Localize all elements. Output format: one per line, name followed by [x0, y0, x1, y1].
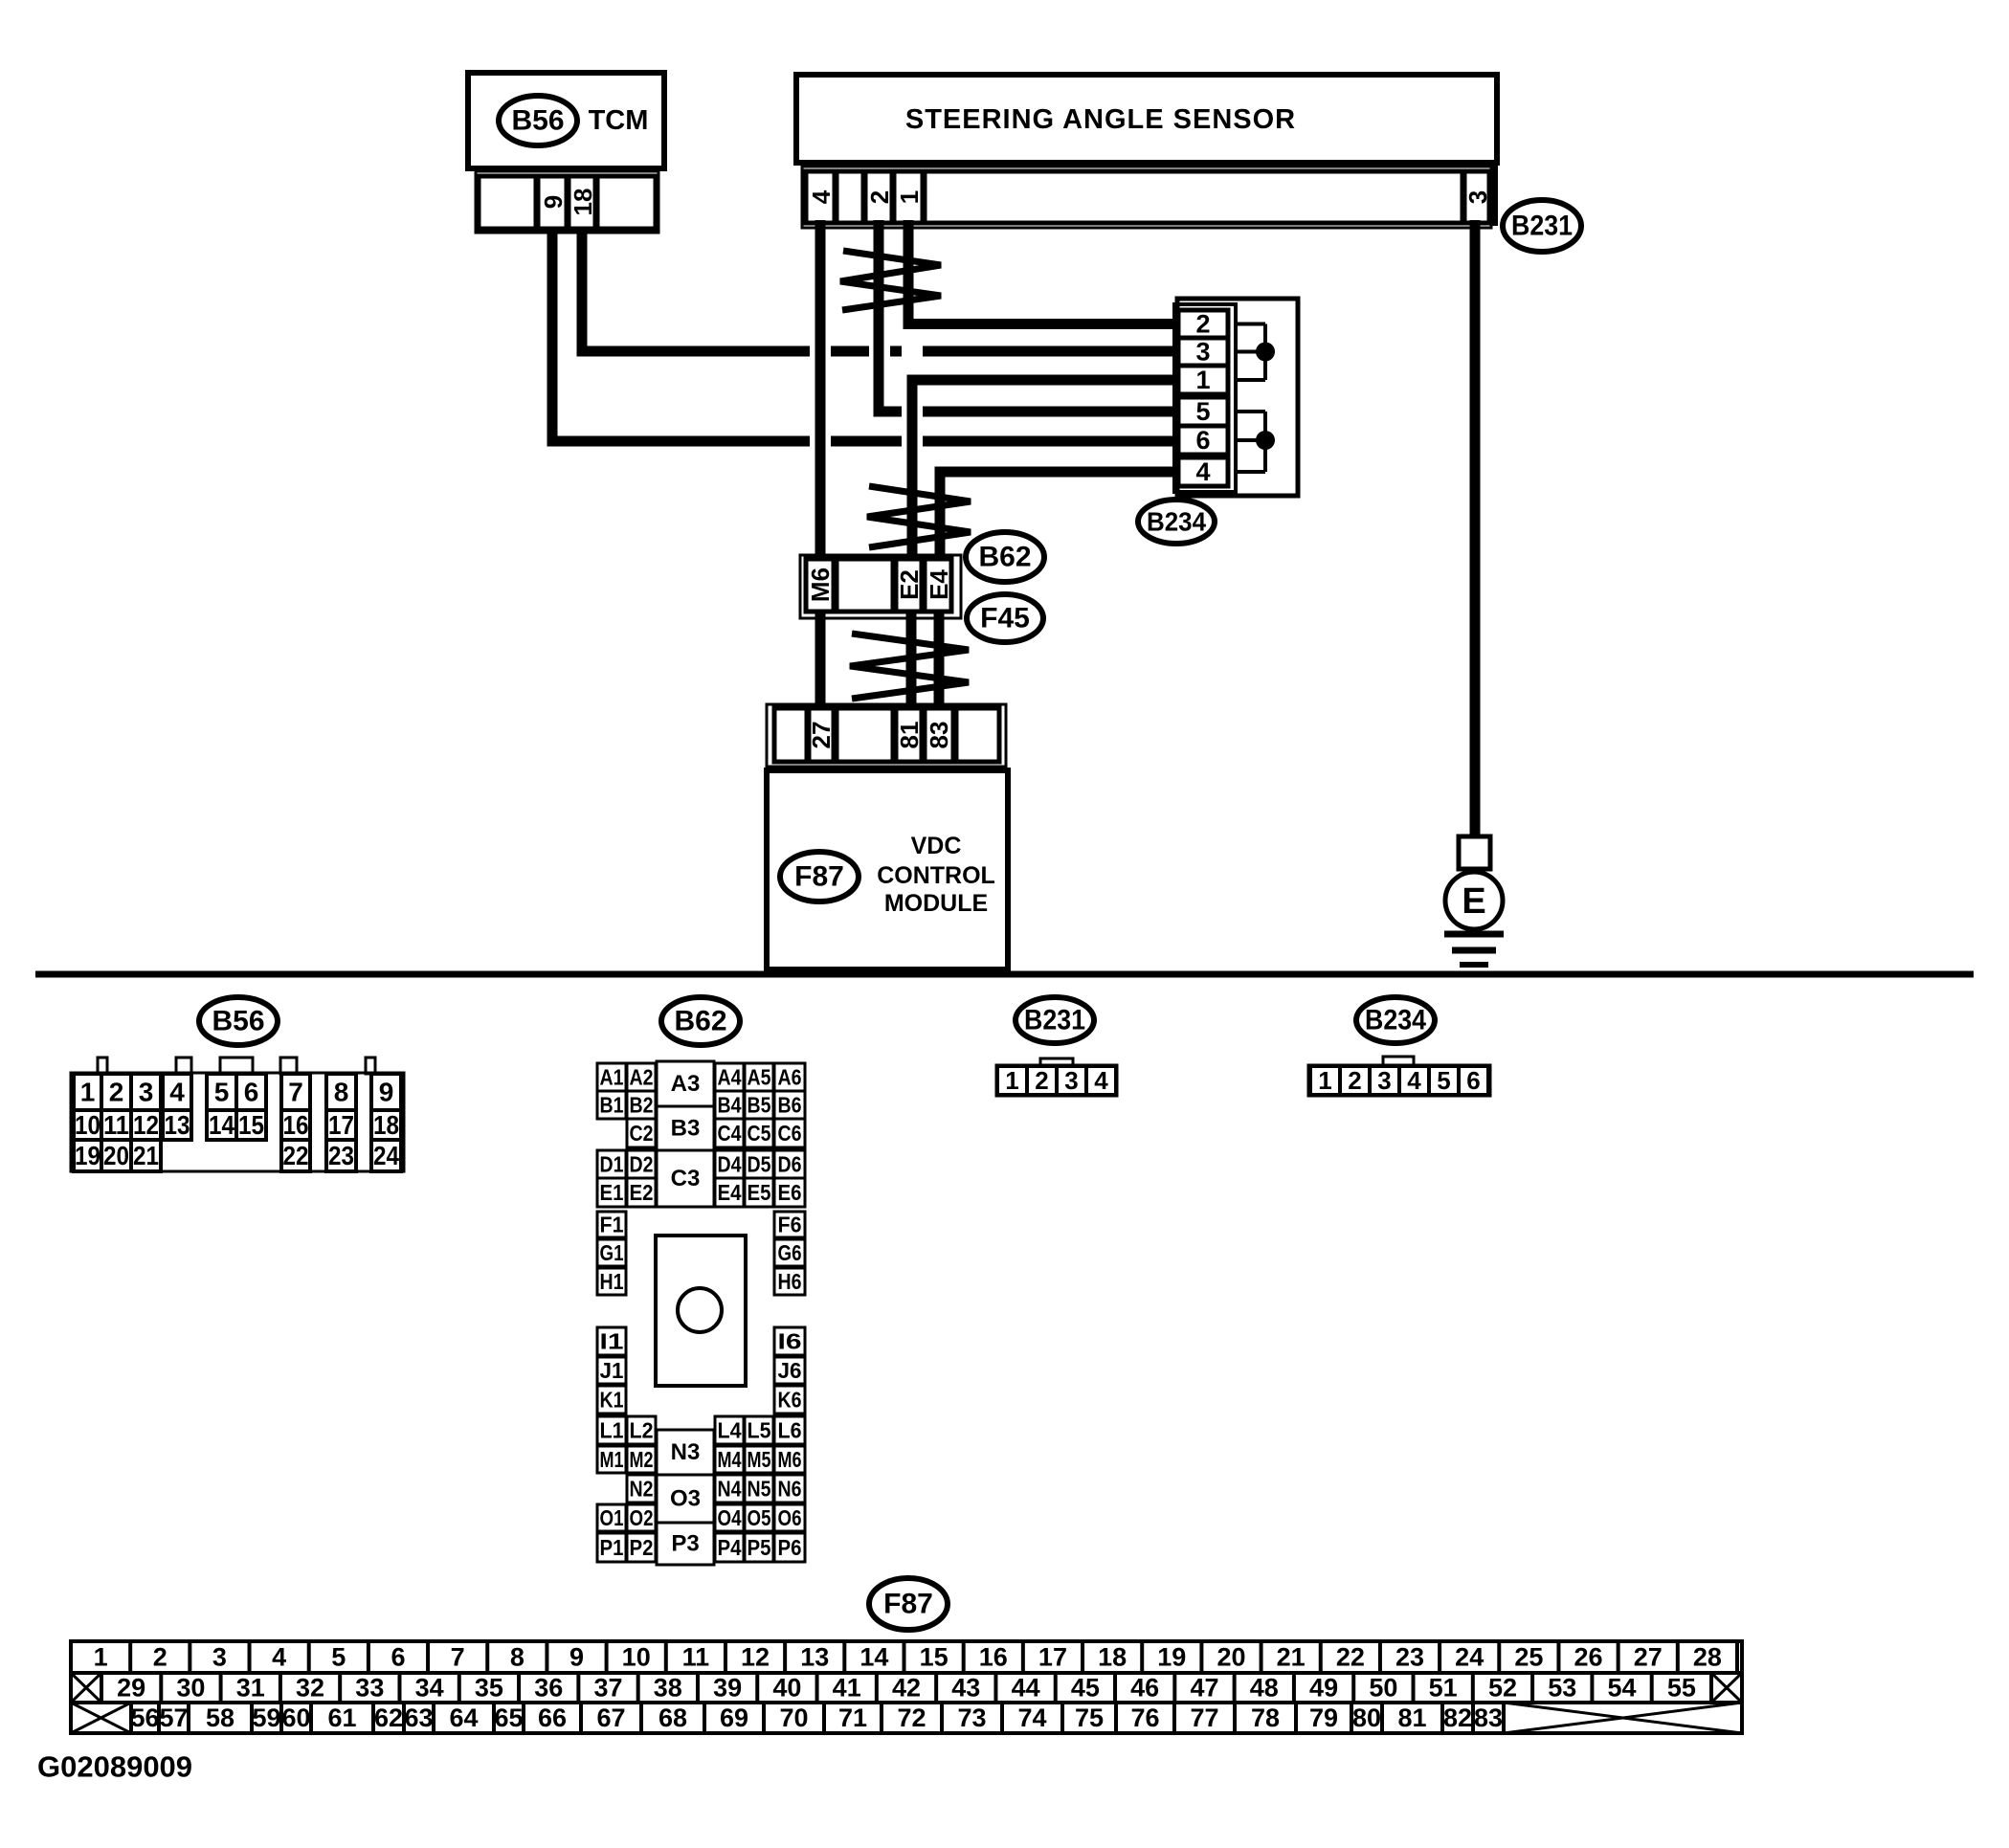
svg-text:C5: C5	[748, 1121, 771, 1146]
svg-text:33: 33	[355, 1674, 384, 1703]
svg-text:82: 82	[1443, 1703, 1472, 1732]
svg-text:M5: M5	[748, 1447, 771, 1472]
svg-text:71: 71	[838, 1703, 867, 1732]
svg-text:32: 32	[296, 1674, 324, 1703]
svg-text:A2: A2	[630, 1065, 654, 1090]
svg-text:F45: F45	[980, 603, 1030, 635]
svg-text:6: 6	[244, 1078, 259, 1107]
svg-text:23: 23	[328, 1141, 354, 1170]
svg-text:M6: M6	[778, 1447, 802, 1472]
svg-text:42: 42	[892, 1674, 921, 1703]
svg-text:75: 75	[1075, 1703, 1104, 1732]
svg-text:38: 38	[654, 1674, 682, 1703]
svg-text:J6: J6	[778, 1358, 802, 1383]
svg-text:22: 22	[283, 1141, 309, 1170]
svg-text:58: 58	[206, 1703, 234, 1732]
svg-text:B234: B234	[1147, 507, 1206, 537]
svg-text:B2: B2	[630, 1093, 654, 1118]
svg-text:7: 7	[288, 1078, 303, 1107]
svg-text:6: 6	[1195, 426, 1210, 455]
svg-text:10: 10	[75, 1110, 100, 1140]
svg-text:B1: B1	[600, 1093, 624, 1118]
svg-text:B3: B3	[671, 1116, 701, 1142]
svg-text:12: 12	[133, 1110, 159, 1140]
svg-text:56: 56	[130, 1703, 159, 1732]
svg-text:1: 1	[1318, 1066, 1331, 1095]
svg-text:74: 74	[1017, 1703, 1046, 1732]
svg-text:STEERING ANGLE SENSOR: STEERING ANGLE SENSOR	[905, 104, 1296, 135]
svg-text:A1: A1	[600, 1065, 624, 1090]
svg-text:19: 19	[1157, 1643, 1186, 1672]
svg-text:1: 1	[1195, 366, 1210, 394]
svg-text:4: 4	[1407, 1066, 1421, 1095]
svg-text:O5: O5	[748, 1505, 771, 1530]
svg-text:81: 81	[895, 722, 924, 749]
svg-text:25: 25	[1514, 1643, 1543, 1672]
svg-text:24: 24	[1455, 1643, 1484, 1672]
svg-text:A4: A4	[718, 1065, 742, 1090]
svg-text:15: 15	[238, 1110, 264, 1140]
svg-text:1: 1	[80, 1078, 96, 1107]
svg-text:O1: O1	[600, 1505, 624, 1530]
svg-text:37: 37	[593, 1674, 622, 1703]
svg-text:65: 65	[494, 1703, 523, 1732]
svg-text:O6: O6	[778, 1505, 802, 1530]
svg-text:5: 5	[1195, 397, 1210, 426]
svg-text:13: 13	[165, 1110, 190, 1140]
svg-text:1: 1	[1005, 1066, 1018, 1095]
svg-text:F87: F87	[883, 1589, 933, 1620]
svg-text:L4: L4	[718, 1418, 742, 1443]
svg-text:N2: N2	[630, 1477, 654, 1502]
svg-text:C3: C3	[671, 1166, 701, 1191]
svg-text:45: 45	[1071, 1674, 1100, 1703]
svg-text:27: 27	[1634, 1643, 1663, 1672]
svg-text:11: 11	[682, 1643, 710, 1672]
svg-text:K1: K1	[600, 1388, 624, 1413]
svg-text:44: 44	[1012, 1674, 1040, 1703]
svg-text:16: 16	[979, 1643, 1008, 1672]
svg-text:TCM: TCM	[589, 105, 649, 136]
svg-text:B62: B62	[674, 1006, 726, 1037]
svg-text:83: 83	[925, 722, 953, 749]
svg-text:F87: F87	[794, 861, 844, 893]
svg-text:2: 2	[153, 1643, 167, 1672]
svg-text:C2: C2	[630, 1121, 654, 1146]
svg-text:59: 59	[252, 1703, 280, 1732]
svg-text:14: 14	[859, 1643, 888, 1672]
svg-text:52: 52	[1488, 1674, 1517, 1703]
svg-text:19: 19	[75, 1141, 100, 1170]
svg-text:5: 5	[214, 1078, 230, 1107]
svg-text:80: 80	[1352, 1703, 1381, 1732]
svg-text:4: 4	[272, 1643, 286, 1672]
svg-text:P6: P6	[778, 1535, 802, 1560]
svg-text:O2: O2	[630, 1505, 654, 1530]
svg-text:6: 6	[391, 1643, 405, 1672]
svg-text:69: 69	[720, 1703, 748, 1732]
svg-text:2: 2	[865, 190, 894, 204]
svg-text:D6: D6	[778, 1152, 802, 1177]
svg-text:G6: G6	[778, 1240, 802, 1265]
svg-text:E: E	[1462, 881, 1485, 922]
svg-text:CONTROL: CONTROL	[877, 862, 995, 889]
svg-text:61: 61	[327, 1703, 356, 1732]
svg-text:I6: I6	[778, 1329, 802, 1354]
svg-text:31: 31	[236, 1674, 265, 1703]
svg-text:2: 2	[109, 1078, 124, 1107]
svg-text:M4: M4	[718, 1447, 742, 1472]
svg-text:P2: P2	[630, 1535, 654, 1560]
svg-text:36: 36	[534, 1674, 563, 1703]
svg-text:50: 50	[1369, 1674, 1397, 1703]
svg-text:L6: L6	[778, 1418, 802, 1443]
svg-text:P1: P1	[600, 1535, 624, 1560]
svg-text:29: 29	[117, 1674, 145, 1703]
svg-text:73: 73	[957, 1703, 986, 1732]
svg-text:B56: B56	[511, 105, 564, 137]
svg-text:26: 26	[1574, 1643, 1603, 1672]
svg-text:55: 55	[1667, 1674, 1696, 1703]
svg-text:E4: E4	[925, 569, 953, 600]
svg-text:2: 2	[1195, 310, 1210, 339]
svg-text:77: 77	[1190, 1703, 1218, 1732]
svg-text:A6: A6	[778, 1065, 802, 1090]
svg-text:76: 76	[1130, 1703, 1159, 1732]
svg-text:A5: A5	[748, 1065, 771, 1090]
svg-text:17: 17	[1038, 1643, 1067, 1672]
svg-text:8: 8	[334, 1078, 349, 1107]
svg-text:39: 39	[713, 1674, 742, 1703]
svg-text:47: 47	[1190, 1674, 1218, 1703]
svg-text:F6: F6	[778, 1213, 802, 1237]
svg-text:B231: B231	[1511, 211, 1573, 242]
svg-text:48: 48	[1250, 1674, 1279, 1703]
svg-text:1: 1	[94, 1643, 108, 1672]
svg-text:D2: D2	[630, 1152, 654, 1177]
svg-text:4: 4	[169, 1078, 185, 1107]
svg-text:B56: B56	[212, 1006, 264, 1037]
svg-text:18: 18	[569, 189, 597, 216]
svg-text:C6: C6	[778, 1121, 802, 1146]
svg-text:3: 3	[1064, 1066, 1078, 1095]
svg-text:68: 68	[659, 1703, 687, 1732]
svg-text:62: 62	[374, 1703, 403, 1732]
svg-text:35: 35	[475, 1674, 503, 1703]
svg-text:4: 4	[1195, 457, 1210, 486]
svg-text:15: 15	[920, 1643, 949, 1672]
svg-text:41: 41	[833, 1674, 861, 1703]
svg-text:46: 46	[1130, 1674, 1159, 1703]
svg-text:70: 70	[779, 1703, 808, 1732]
svg-text:F1: F1	[600, 1213, 624, 1237]
svg-text:43: 43	[951, 1674, 980, 1703]
svg-text:M2: M2	[630, 1447, 654, 1472]
svg-text:27: 27	[807, 722, 836, 749]
svg-text:1: 1	[895, 190, 924, 204]
svg-text:72: 72	[897, 1703, 926, 1732]
svg-text:66: 66	[538, 1703, 567, 1732]
svg-text:N6: N6	[778, 1477, 802, 1502]
svg-text:E1: E1	[600, 1180, 624, 1205]
svg-text:22: 22	[1336, 1643, 1365, 1672]
svg-text:O4: O4	[718, 1505, 742, 1530]
svg-text:L2: L2	[630, 1418, 654, 1443]
svg-text:16: 16	[283, 1110, 309, 1140]
svg-text:81: 81	[1397, 1703, 1426, 1732]
svg-text:63: 63	[404, 1703, 433, 1732]
svg-text:12: 12	[741, 1643, 770, 1672]
svg-text:H6: H6	[778, 1269, 802, 1294]
svg-text:24: 24	[373, 1141, 399, 1170]
svg-text:67: 67	[596, 1703, 625, 1732]
svg-text:B234: B234	[1365, 1005, 1426, 1036]
svg-text:I1: I1	[600, 1329, 624, 1354]
svg-text:G02089009: G02089009	[37, 1750, 192, 1784]
svg-text:5: 5	[331, 1643, 346, 1672]
svg-text:9: 9	[379, 1078, 394, 1107]
svg-text:O3: O3	[670, 1486, 701, 1512]
svg-text:30: 30	[176, 1674, 205, 1703]
svg-text:P3: P3	[671, 1531, 699, 1557]
svg-text:E5: E5	[748, 1180, 771, 1205]
svg-text:M6: M6	[806, 568, 835, 602]
svg-text:E4: E4	[718, 1180, 742, 1205]
svg-text:E2: E2	[630, 1180, 654, 1205]
svg-text:3: 3	[1463, 190, 1492, 204]
svg-text:3: 3	[139, 1078, 154, 1107]
svg-text:G1: G1	[600, 1240, 624, 1265]
svg-text:B4: B4	[718, 1093, 742, 1118]
svg-text:20: 20	[103, 1141, 129, 1170]
svg-text:18: 18	[1098, 1643, 1127, 1672]
svg-text:13: 13	[800, 1643, 829, 1672]
svg-text:10: 10	[622, 1643, 651, 1672]
svg-text:A3: A3	[671, 1071, 701, 1097]
svg-text:53: 53	[1548, 1674, 1576, 1703]
svg-text:D1: D1	[600, 1152, 624, 1177]
svg-text:49: 49	[1309, 1674, 1338, 1703]
svg-text:3: 3	[1195, 338, 1210, 367]
svg-text:P5: P5	[748, 1535, 771, 1560]
svg-text:M1: M1	[600, 1447, 624, 1472]
svg-text:60: 60	[281, 1703, 310, 1732]
svg-text:57: 57	[159, 1703, 188, 1732]
svg-text:4: 4	[807, 189, 836, 204]
svg-text:6: 6	[1466, 1066, 1480, 1095]
svg-text:11: 11	[103, 1110, 129, 1140]
svg-text:2: 2	[1348, 1066, 1361, 1095]
svg-text:L5: L5	[748, 1418, 771, 1443]
svg-text:3: 3	[1377, 1066, 1391, 1095]
svg-text:17: 17	[328, 1110, 354, 1140]
svg-text:C4: C4	[718, 1121, 742, 1146]
svg-text:B6: B6	[778, 1093, 802, 1118]
svg-text:3: 3	[212, 1643, 227, 1672]
svg-text:MODULE: MODULE	[884, 890, 988, 917]
svg-text:9: 9	[569, 1643, 584, 1672]
svg-text:28: 28	[1693, 1643, 1722, 1672]
svg-text:B62: B62	[978, 542, 1031, 573]
svg-text:B231: B231	[1024, 1005, 1085, 1036]
svg-text:P4: P4	[718, 1535, 742, 1560]
svg-text:VDC: VDC	[911, 833, 962, 859]
svg-text:N5: N5	[748, 1477, 771, 1502]
svg-text:8: 8	[510, 1643, 525, 1672]
svg-text:21: 21	[1277, 1643, 1306, 1672]
svg-text:34: 34	[415, 1674, 444, 1703]
svg-text:H1: H1	[600, 1269, 624, 1294]
svg-text:2: 2	[1035, 1066, 1048, 1095]
svg-text:40: 40	[772, 1674, 801, 1703]
svg-text:N3: N3	[671, 1439, 701, 1465]
svg-text:7: 7	[451, 1643, 465, 1672]
svg-text:5: 5	[1437, 1066, 1450, 1095]
svg-text:79: 79	[1309, 1703, 1338, 1732]
svg-text:N4: N4	[718, 1477, 742, 1502]
svg-text:L1: L1	[600, 1418, 624, 1443]
svg-text:14: 14	[209, 1110, 234, 1140]
svg-text:64: 64	[449, 1703, 478, 1732]
svg-text:E6: E6	[778, 1180, 802, 1205]
svg-text:21: 21	[133, 1141, 159, 1170]
svg-text:51: 51	[1429, 1674, 1458, 1703]
svg-text:4: 4	[1094, 1066, 1108, 1095]
svg-text:9: 9	[539, 195, 568, 209]
svg-text:78: 78	[1251, 1703, 1280, 1732]
svg-text:54: 54	[1608, 1674, 1637, 1703]
svg-text:K6: K6	[778, 1388, 802, 1413]
svg-text:J1: J1	[600, 1358, 624, 1383]
svg-text:23: 23	[1395, 1643, 1424, 1672]
svg-text:E2: E2	[895, 569, 924, 600]
svg-text:B5: B5	[748, 1093, 771, 1118]
svg-text:18: 18	[373, 1110, 399, 1140]
svg-text:20: 20	[1217, 1643, 1245, 1672]
svg-text:D5: D5	[748, 1152, 771, 1177]
svg-text:83: 83	[1474, 1703, 1503, 1732]
svg-text:D4: D4	[718, 1152, 742, 1177]
